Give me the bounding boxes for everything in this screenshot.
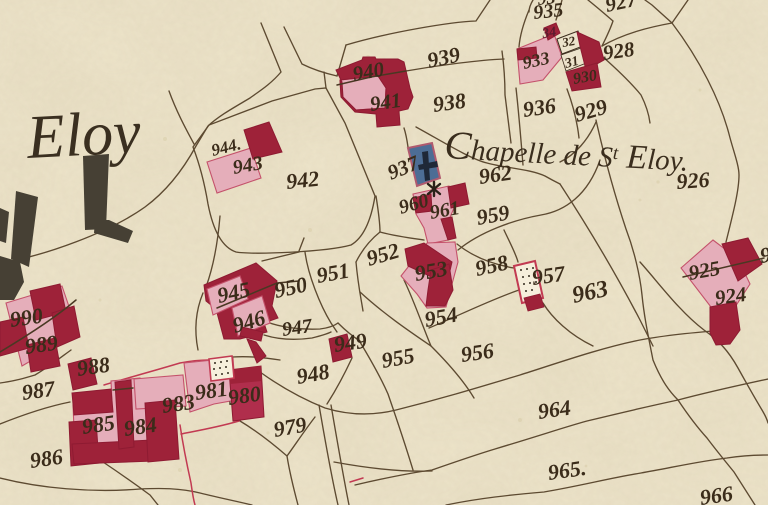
svg-text:926: 926 bbox=[676, 167, 711, 194]
svg-text:988: 988 bbox=[75, 352, 111, 381]
svg-text:985: 985 bbox=[80, 410, 116, 439]
svg-text:956: 956 bbox=[459, 338, 495, 367]
svg-text:966: 966 bbox=[698, 481, 734, 505]
svg-text:936: 936 bbox=[521, 93, 557, 122]
svg-text:981: 981 bbox=[193, 376, 229, 405]
svg-text:34: 34 bbox=[540, 25, 557, 42]
svg-text:938: 938 bbox=[431, 88, 467, 117]
svg-text:986: 986 bbox=[28, 444, 64, 473]
svg-text:989: 989 bbox=[23, 330, 59, 359]
svg-text:Eloy: Eloy bbox=[24, 98, 142, 172]
svg-text:987: 987 bbox=[20, 375, 57, 404]
svg-text:964: 964 bbox=[536, 395, 572, 424]
svg-text:990: 990 bbox=[8, 303, 44, 332]
svg-text:980: 980 bbox=[226, 381, 262, 410]
svg-text:942: 942 bbox=[285, 166, 320, 194]
svg-text:949: 949 bbox=[332, 328, 368, 357]
svg-text:928: 928 bbox=[601, 37, 636, 65]
svg-text:983: 983 bbox=[160, 389, 196, 418]
svg-text:965.: 965. bbox=[546, 455, 588, 485]
svg-text:984: 984 bbox=[122, 412, 158, 441]
svg-text:962: 962 bbox=[477, 160, 513, 189]
svg-text:924: 924 bbox=[713, 282, 748, 310]
svg-text:957: 957 bbox=[530, 260, 567, 289]
svg-text:947: 947 bbox=[281, 315, 315, 341]
svg-text:941: 941 bbox=[368, 88, 403, 116]
